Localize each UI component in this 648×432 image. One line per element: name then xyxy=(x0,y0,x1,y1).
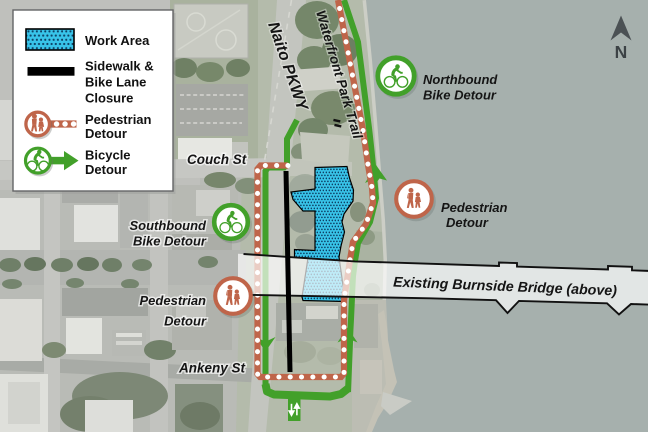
svg-text:N: N xyxy=(615,42,628,62)
svg-text:Bike Lane: Bike Lane xyxy=(85,75,146,90)
svg-text:Sidewalk &: Sidewalk & xyxy=(85,59,154,74)
svg-text:Pedestrian: Pedestrian xyxy=(85,112,152,127)
svg-text:Pedestrian: Pedestrian xyxy=(441,200,508,215)
svg-text:Southbound: Southbound xyxy=(129,218,207,233)
svg-text:Ankeny St: Ankeny St xyxy=(178,361,246,376)
svg-text:Pedestrian: Pedestrian xyxy=(140,293,207,308)
svg-text:Bicycle: Bicycle xyxy=(85,148,131,163)
svg-text:Detour: Detour xyxy=(85,162,127,177)
svg-text:Closure: Closure xyxy=(85,91,133,106)
svg-text:Detour: Detour xyxy=(85,126,127,141)
svg-text:Couch St: Couch St xyxy=(187,152,247,167)
svg-text:Detour: Detour xyxy=(164,314,207,329)
svg-text:Bike Detour: Bike Detour xyxy=(423,88,497,103)
svg-text:Work Area: Work Area xyxy=(85,33,150,48)
svg-text:Bike Detour: Bike Detour xyxy=(133,234,207,249)
svg-text:Northbound: Northbound xyxy=(423,72,498,87)
svg-text:Detour: Detour xyxy=(446,215,489,230)
